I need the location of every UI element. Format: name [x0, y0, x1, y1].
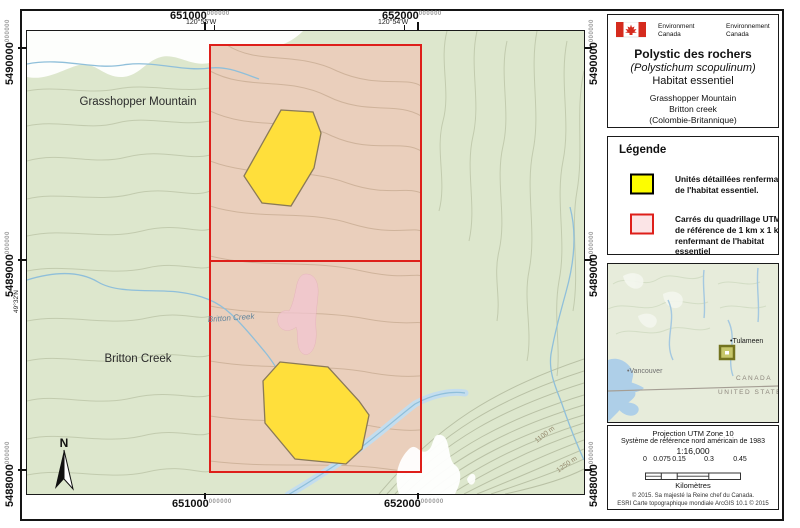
agency-header: EnvironmentCanada EnvironnementCanada: [614, 19, 774, 45]
legend-item-label: Unités détaillées renfermant de l'habita…: [675, 174, 779, 196]
inset-label-vancouver: •Vancouver: [627, 368, 662, 375]
canada-flag-icon: [616, 22, 646, 38]
scalebar-label-03: 0.3: [704, 456, 714, 463]
label-britton-creek-area: Britton Creek: [104, 353, 171, 365]
legend-swatch-pink: [629, 213, 655, 236]
legend-item-utm-squares: Carrés du quadrillage UTM de référence d…: [629, 213, 655, 241]
projection-line-1: Projection UTM Zone 10: [608, 429, 778, 438]
projection-line-2: Système de référence nord américain de 1…: [608, 438, 778, 445]
tick: [214, 25, 215, 30]
tick: [417, 493, 419, 499]
tick: [18, 469, 27, 471]
tick: [584, 259, 592, 261]
tick: [584, 469, 592, 471]
grid-label-right-5490000: 5490000000000: [588, 19, 600, 85]
tick: [417, 22, 419, 30]
tick: [18, 259, 27, 261]
copyright: © 2015. Sa majesté la Reine chef du Cana…: [608, 492, 778, 508]
grid-label-left-5490000: 5490000000000: [4, 19, 16, 85]
title-panel: EnvironmentCanada EnvironnementCanada Po…: [607, 14, 779, 128]
scalebar-label-0: 0: [643, 456, 647, 463]
north-label: N: [60, 436, 69, 450]
scale-ratio: 1:16,000: [608, 446, 778, 456]
info-panel: Projection UTM Zone 10 Système de référe…: [607, 425, 779, 510]
label-grasshopper-mountain: Grasshopper Mountain: [80, 96, 197, 108]
tulameen-marker: [720, 346, 734, 359]
main-map: Grasshopper Mountain Britton Creek Britt…: [27, 31, 584, 494]
tick: [584, 47, 592, 49]
agency-name-en: EnvironmentCanada: [658, 23, 695, 39]
grid-label-lon-55: 120°55'W: [186, 19, 216, 26]
inset-label-canada: CANADA: [736, 375, 772, 382]
map-title-latin: (Polystichum scopulinum): [608, 62, 778, 75]
grid-label-bottom-652000: 652000000000: [384, 498, 444, 510]
legend-swatch-yellow: [629, 173, 655, 196]
grid-label-left-5489000: 5489000000000: [4, 231, 16, 297]
inset-label-tulameen: •Tulameen: [730, 338, 763, 345]
agency-name-fr: EnvironnementCanada: [726, 23, 770, 39]
scalebar-label-045: 0.45: [733, 456, 747, 463]
inset-label-united-states: UNITED STATES: [718, 389, 779, 396]
legend-panel: Légende Unités détaillées renfermant de …: [607, 136, 779, 255]
scalebar-label-0075: 0.075: [653, 456, 671, 463]
main-map-frame: Grasshopper Mountain Britton Creek Britt…: [26, 30, 585, 495]
grid-label-bottom-651000: 651000000000: [172, 498, 232, 510]
map-subtitle: Habitat essentiel: [608, 75, 778, 88]
tick: [204, 22, 206, 30]
grid-label-right-5488000: 5488000000000: [588, 441, 600, 507]
legend-item-label: Carrés du quadrillage UTM de référence d…: [675, 214, 779, 255]
scalebar-unit: Kilomètres: [608, 481, 778, 490]
scalebar-label-015: 0.15: [672, 456, 686, 463]
map-title: Polystic des rochers: [608, 48, 778, 62]
grid-label-left-5488000: 5488000000000: [4, 441, 16, 507]
map-document: Grasshopper Mountain Britton Creek Britt…: [0, 0, 800, 528]
grid-label-right-5489000: 5489000000000: [588, 231, 600, 297]
tick: [18, 47, 27, 49]
grid-label-lat: 49°32'N: [13, 290, 20, 313]
locator-map-panel: •Tulameen •Vancouver CANADA UNITED STATE…: [607, 263, 779, 423]
tick: [404, 25, 405, 30]
legend-heading: Légende: [619, 144, 666, 156]
legend-item-habitat-units: Unités détaillées renfermant de l'habita…: [629, 173, 655, 201]
map-location: Grasshopper Mountain Britton creek (Colo…: [608, 93, 778, 126]
tick: [204, 493, 206, 499]
